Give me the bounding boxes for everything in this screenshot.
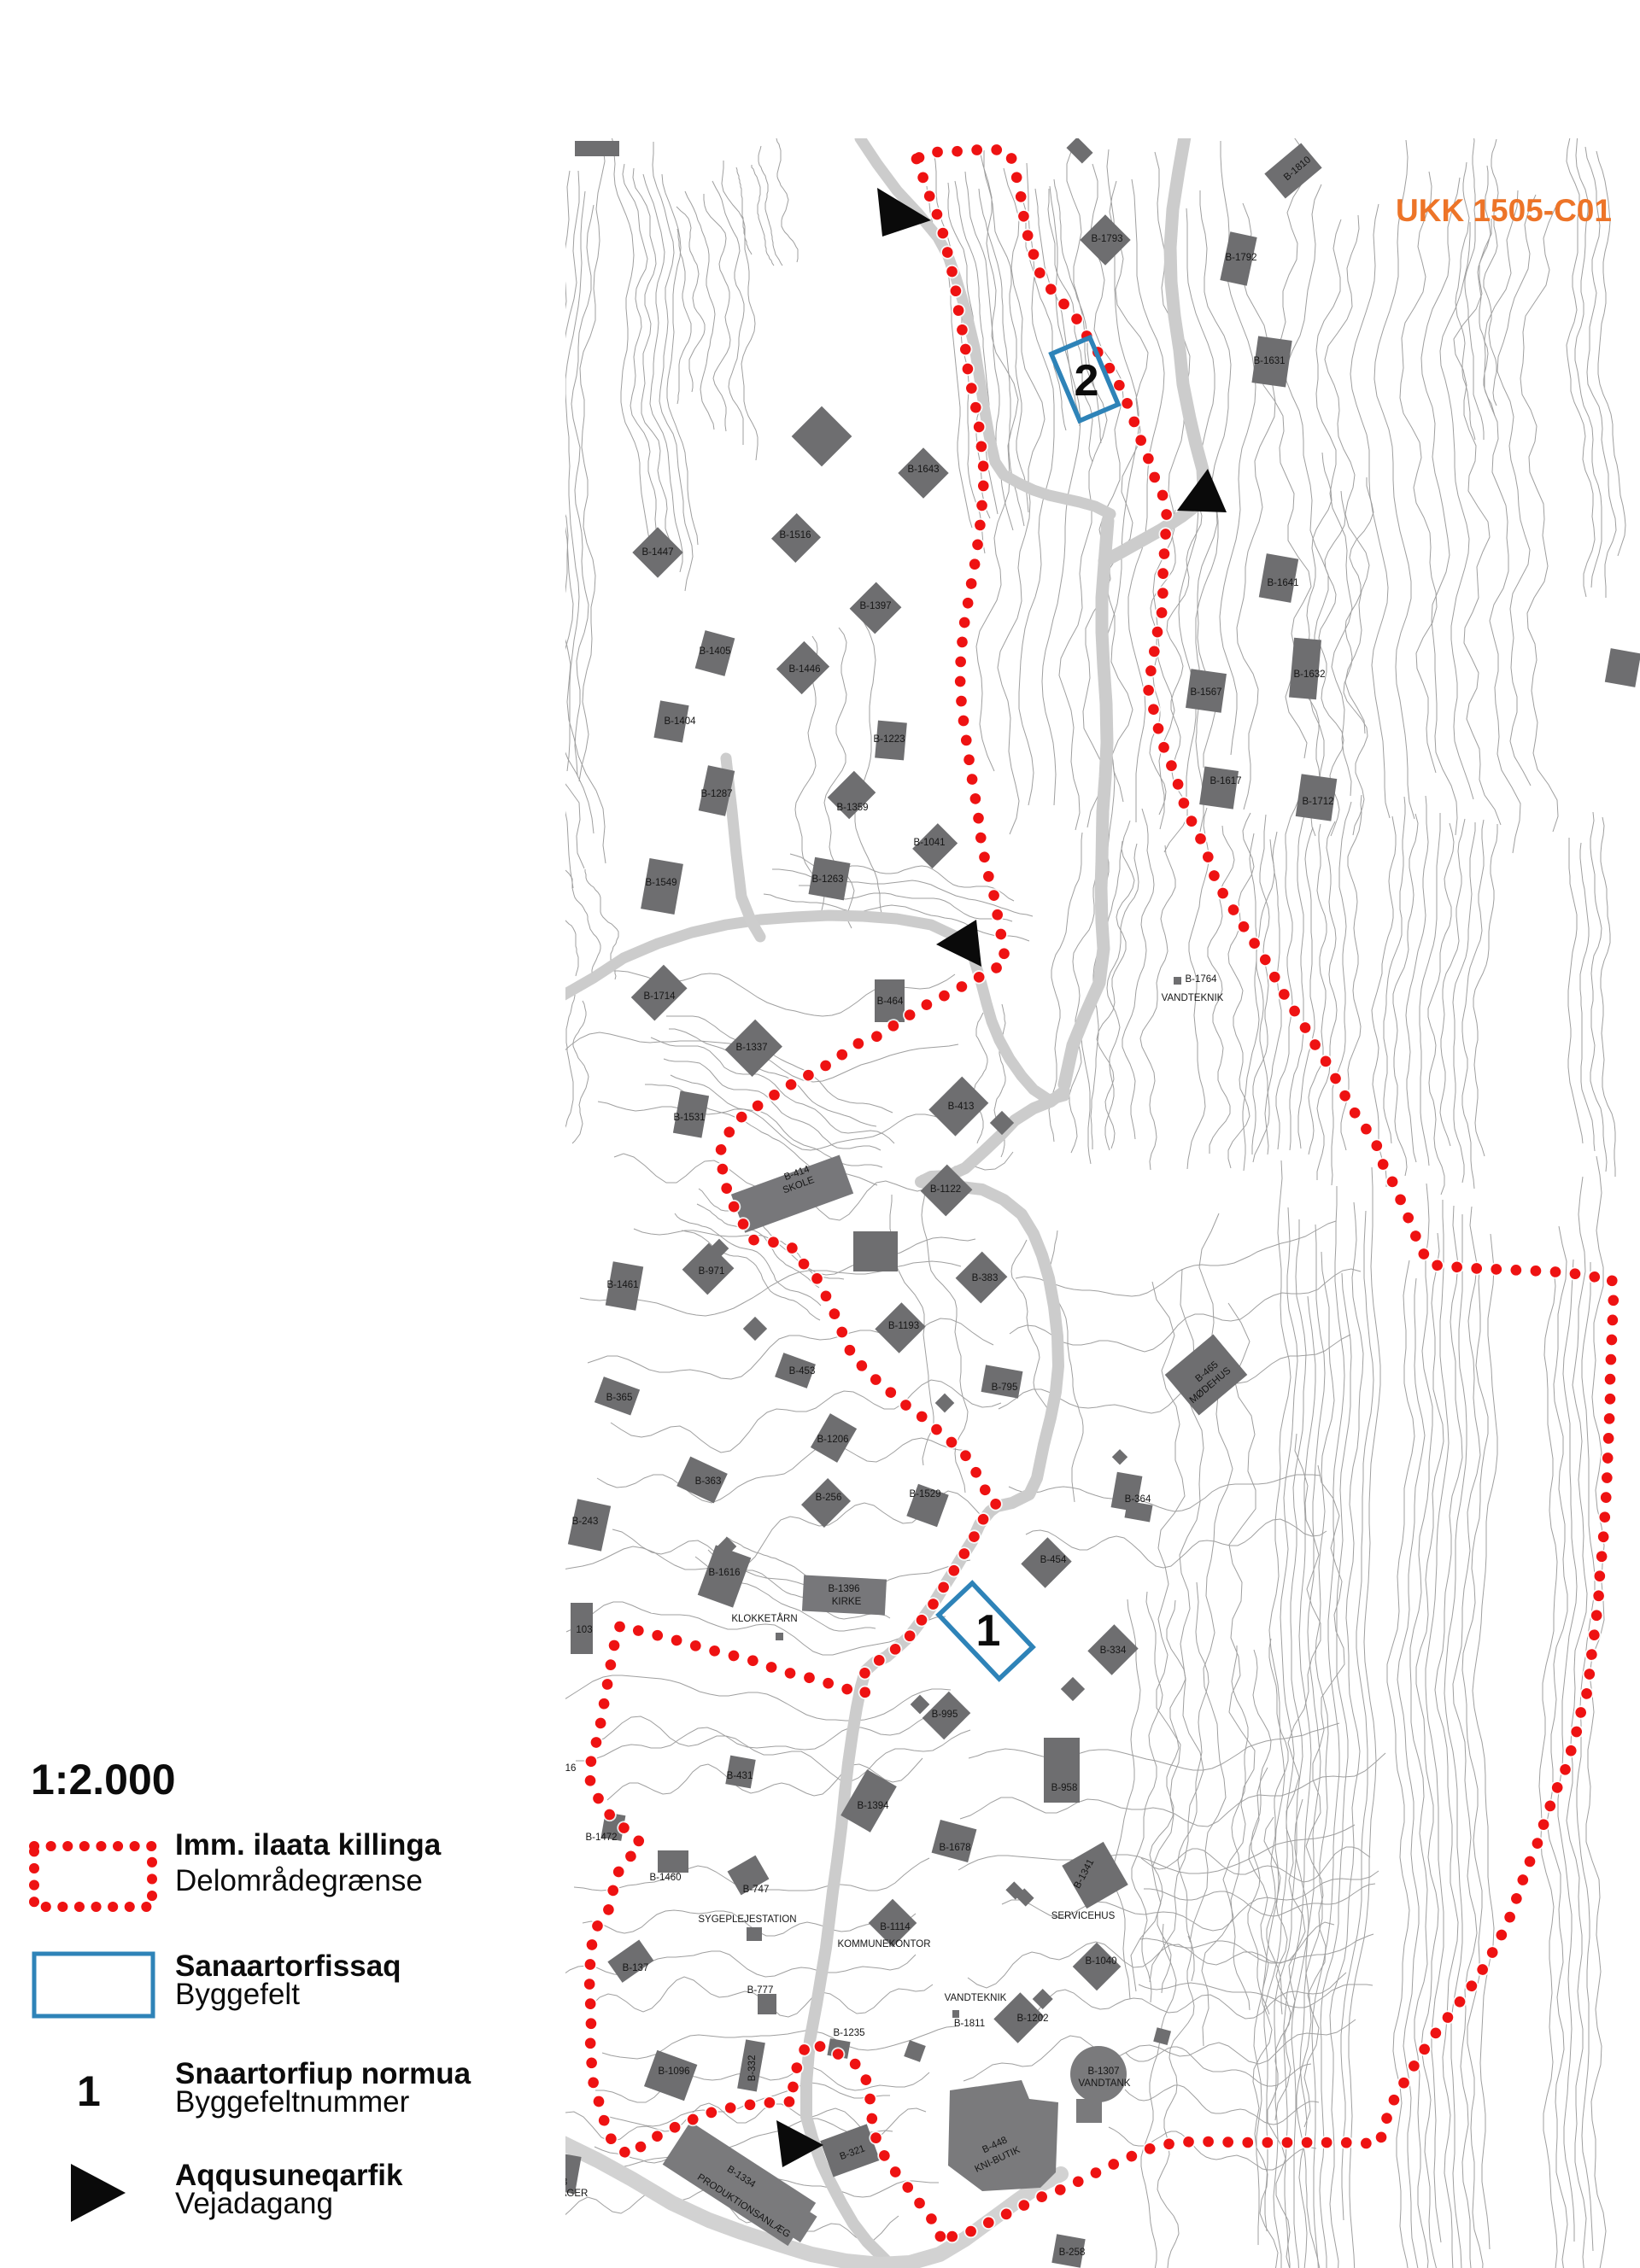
svg-text:B-364: B-364 [1125, 1494, 1151, 1505]
svg-text:VANDTEKNIK: VANDTEKNIK [1162, 993, 1224, 1003]
svg-text:B-365: B-365 [606, 1393, 633, 1403]
svg-text:B-1223: B-1223 [873, 734, 905, 745]
svg-text:B-1631: B-1631 [1253, 356, 1285, 366]
svg-text:B-1446: B-1446 [788, 664, 820, 675]
svg-text:Byggefelt: Byggefelt [175, 1978, 300, 2011]
svg-text:B-1096: B-1096 [658, 2066, 689, 2077]
svg-text:B-1792: B-1792 [1225, 253, 1256, 263]
svg-text:B-464: B-464 [877, 997, 904, 1007]
svg-text:B-1461: B-1461 [606, 1280, 638, 1290]
svg-text:Vejadagang: Vejadagang [175, 2187, 333, 2220]
svg-text:B-1396: B-1396 [828, 1584, 859, 1594]
svg-text:B-1041: B-1041 [913, 838, 945, 848]
svg-text:B-1764: B-1764 [1185, 974, 1217, 985]
svg-text:B-243: B-243 [572, 1517, 599, 1527]
svg-text:B-334: B-334 [1100, 1645, 1127, 1656]
svg-text:2: 2 [1075, 356, 1099, 406]
svg-text:VANDTANK: VANDTANK [1079, 2078, 1131, 2089]
svg-text:B-1287: B-1287 [700, 789, 732, 799]
svg-text:KLOKKETÅRN: KLOKKETÅRN [731, 1613, 797, 1624]
svg-text:B-1447: B-1447 [641, 547, 673, 558]
svg-text:B-1114: B-1114 [880, 1922, 911, 1932]
svg-text:B-1337: B-1337 [735, 1043, 767, 1053]
svg-text:UKK 1505-C01: UKK 1505-C01 [1396, 193, 1612, 228]
svg-text:16: 16 [565, 1763, 577, 1774]
svg-text:B-1811: B-1811 [954, 2019, 985, 2029]
svg-text:VANDTEKNIK: VANDTEKNIK [945, 1993, 1007, 2003]
svg-text:B-995: B-995 [932, 1710, 958, 1720]
svg-text:B-1712: B-1712 [1302, 797, 1333, 807]
svg-text:B-137: B-137 [623, 1963, 649, 1973]
svg-text:B-1359: B-1359 [836, 803, 868, 813]
svg-text:B-1531: B-1531 [673, 1113, 705, 1123]
svg-text:SERVICEHUS: SERVICEHUS [1051, 1911, 1116, 1921]
svg-text:Byggefeltnummer: Byggefeltnummer [175, 2085, 410, 2119]
svg-text:B-1460: B-1460 [649, 1873, 681, 1883]
svg-text:B-1397: B-1397 [859, 601, 891, 611]
svg-text:1: 1 [976, 1606, 1001, 1656]
svg-text:B-1202: B-1202 [1016, 2014, 1048, 2024]
svg-text:Delområdegrænse: Delområdegrænse [175, 1864, 423, 1897]
svg-text:B-1714: B-1714 [643, 991, 676, 1002]
svg-text:B-1307: B-1307 [1087, 2066, 1119, 2077]
svg-text:B-258: B-258 [1059, 2248, 1086, 2258]
svg-text:B-332: B-332 [747, 2055, 758, 2082]
svg-text:B-1404: B-1404 [664, 716, 696, 727]
svg-text:B-1263: B-1263 [811, 874, 843, 885]
svg-text:B-1529: B-1529 [909, 1489, 940, 1499]
svg-text:B-1193: B-1193 [888, 1321, 919, 1331]
svg-text:B-431: B-431 [727, 1771, 753, 1781]
svg-text:B-1235: B-1235 [833, 2028, 864, 2038]
svg-text:Imm. ilaata killinga: Imm. ilaata killinga [175, 1828, 442, 1862]
svg-text:SYGEPLEJESTATION: SYGEPLEJESTATION [698, 1914, 796, 1925]
svg-text:B-1549: B-1549 [645, 878, 676, 888]
svg-text:B-1616: B-1616 [708, 1568, 740, 1578]
svg-text:B-1567: B-1567 [1190, 687, 1221, 698]
svg-text:B-1516: B-1516 [779, 530, 811, 541]
svg-text:B-1632: B-1632 [1293, 669, 1325, 680]
svg-text:B-453: B-453 [789, 1366, 816, 1377]
svg-text:KOMMUNEKONTOR: KOMMUNEKONTOR [837, 1939, 930, 1949]
svg-text:B-454: B-454 [1040, 1555, 1067, 1565]
svg-text:B-795: B-795 [992, 1382, 1018, 1393]
svg-text:B-1405: B-1405 [699, 646, 730, 657]
svg-text:B-1617: B-1617 [1209, 776, 1241, 786]
svg-text:B-1206: B-1206 [817, 1435, 848, 1445]
svg-text:B-413: B-413 [948, 1102, 975, 1112]
svg-text:B-1641: B-1641 [1267, 578, 1298, 588]
svg-text:B-971: B-971 [699, 1266, 725, 1277]
svg-text:B-747: B-747 [743, 1885, 770, 1895]
svg-text:103: 103 [576, 1625, 592, 1635]
svg-text:B-1643: B-1643 [907, 465, 939, 475]
svg-text:B-256: B-256 [816, 1493, 842, 1503]
svg-text:B-1472: B-1472 [585, 1833, 617, 1843]
svg-text:1:2.000: 1:2.000 [31, 1756, 176, 1803]
svg-text:B-383: B-383 [972, 1273, 999, 1283]
svg-text:B-1678: B-1678 [939, 1843, 970, 1853]
svg-text:KIRKE: KIRKE [832, 1597, 862, 1607]
svg-text:B-1793: B-1793 [1091, 234, 1122, 244]
svg-text:B-1394: B-1394 [857, 1801, 889, 1811]
svg-text:B-958: B-958 [1051, 1783, 1078, 1793]
svg-text:B-777: B-777 [747, 1985, 774, 1996]
svg-text:B-1040: B-1040 [1085, 1956, 1116, 1967]
svg-text:B-1122: B-1122 [930, 1184, 961, 1195]
svg-text:B-363: B-363 [695, 1476, 722, 1487]
svg-text:1: 1 [77, 2067, 101, 2115]
